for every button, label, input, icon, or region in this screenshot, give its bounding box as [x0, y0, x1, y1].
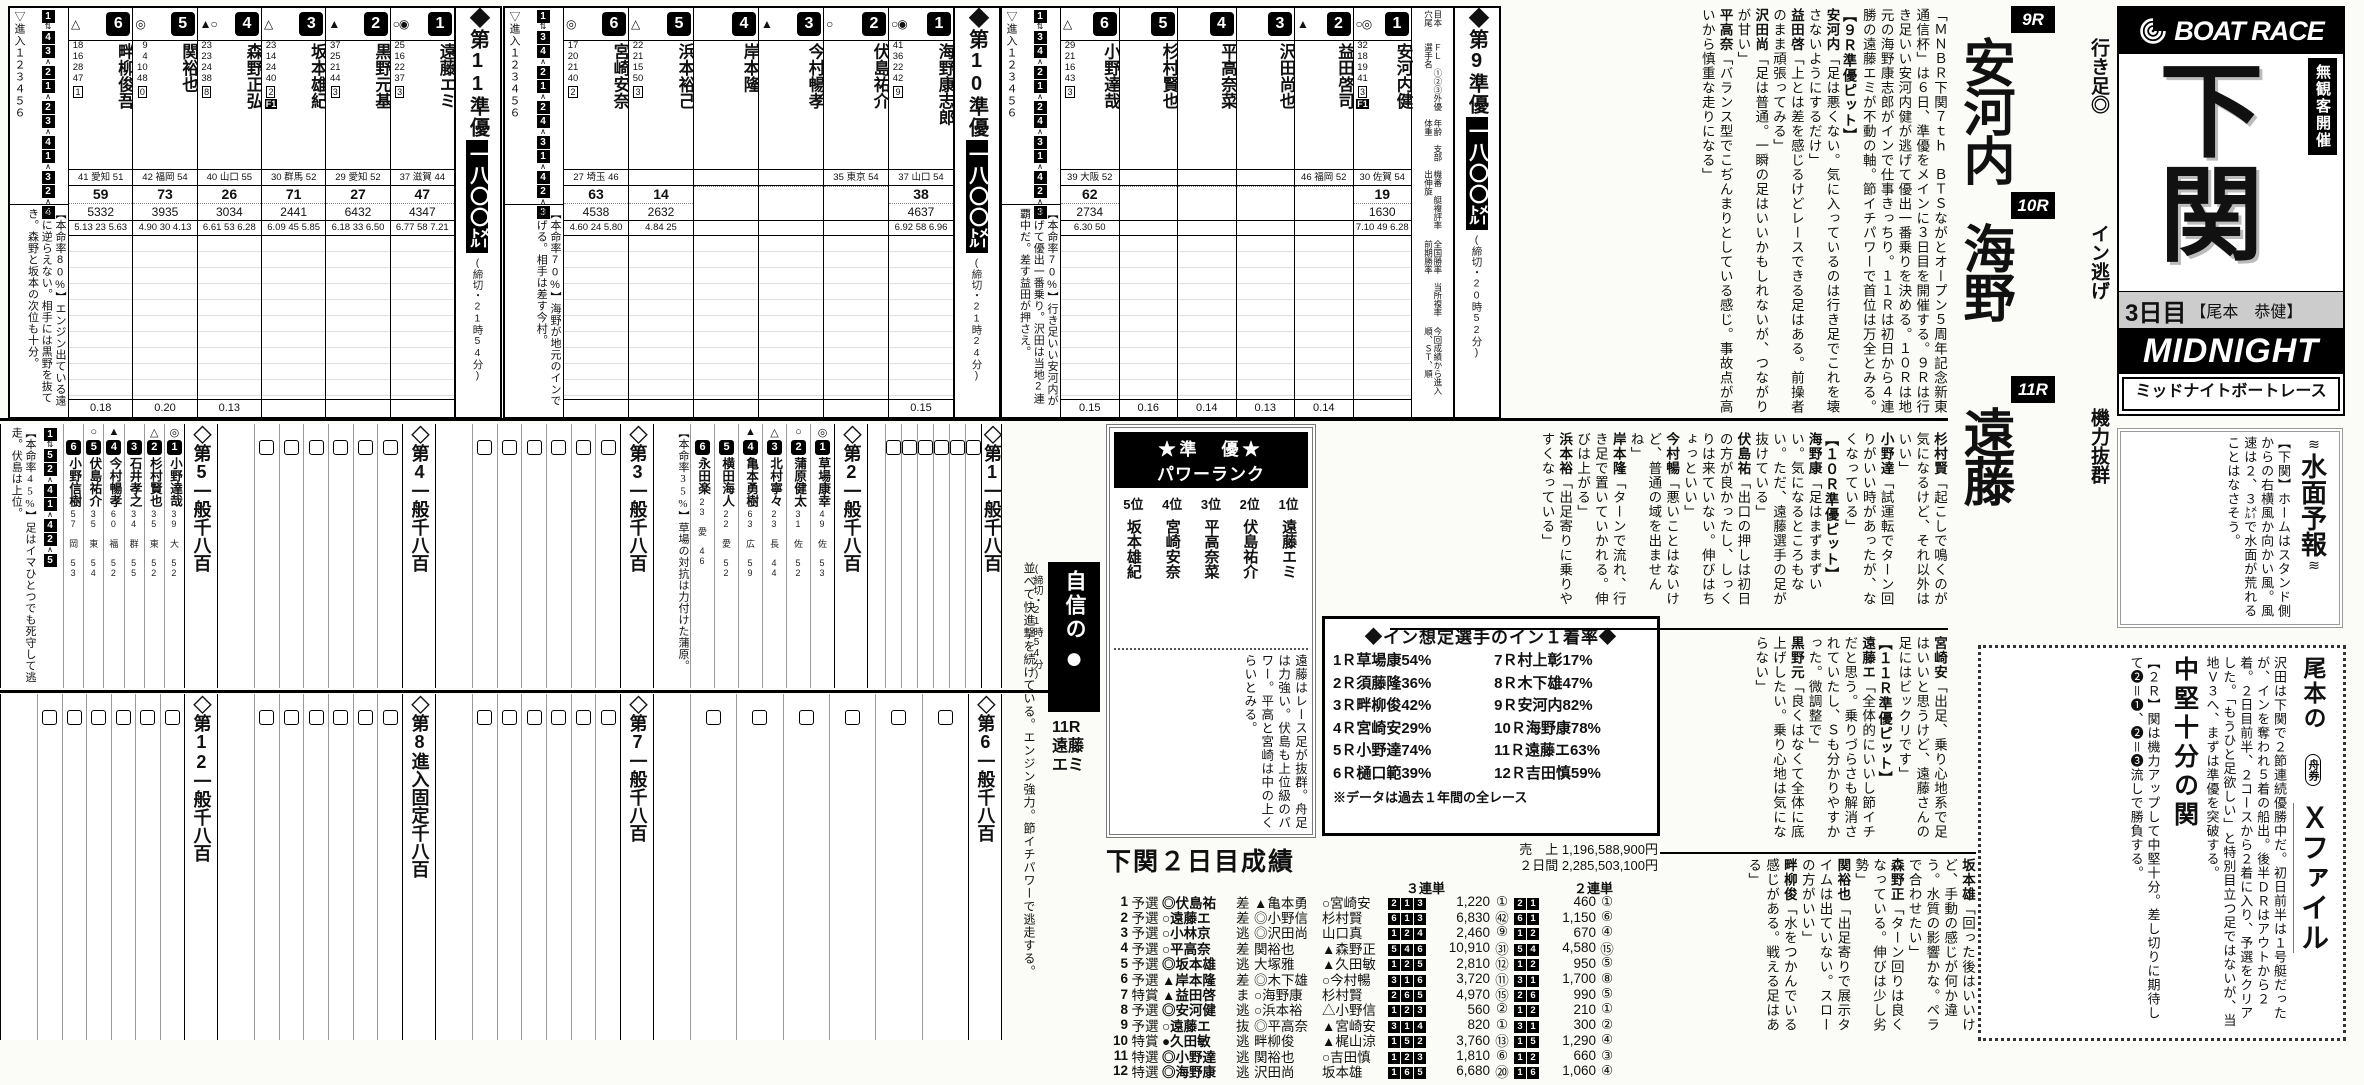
registration-number: 6432 — [326, 204, 389, 220]
headline-group: 11R遠藤機力抜群 — [1952, 376, 2114, 560]
racer-column: ○◎132 18 19 413F1安河内健30 佐賀 541916307.10 … — [1353, 8, 1412, 417]
combination-boat-number: 5 — [1414, 959, 1426, 971]
entry-pair: 1∧2 — [537, 80, 550, 114]
entry-boat-number: 4 — [42, 31, 55, 44]
foul-flag: F1 — [1356, 99, 1369, 109]
win-rates — [1120, 221, 1178, 236]
combination-boat-number: 1 — [1388, 959, 1400, 971]
preview-racer-column: ○2蒲原健太31 佐 52 — [786, 424, 810, 688]
racer-column: 5杉村賢也0.16 — [1119, 8, 1178, 417]
finish-combination: 31 — [1514, 971, 1550, 987]
finish-combination: 31 — [1514, 1017, 1550, 1033]
pit-quote: 小野達「試運転でターン回りがいい時があったが、なくなっている」 — [1841, 432, 1894, 608]
preview-racer-column: △3北村寧々23 長 44 — [762, 424, 786, 688]
preview-racer-column — [328, 424, 353, 688]
closed-door-label: 無観客開催 — [2308, 58, 2337, 155]
preview-title: ◇第8進入固定千八百 — [410, 694, 429, 878]
card-legend-column: 目本 穴尾ＦＬ ①②③外優 選手名年齢 支部 体重機番 艇複評率 出伸旋全国勝率… — [1411, 8, 1453, 417]
preview-comment — [654, 694, 690, 1040]
combination-boat-number: 1 — [1388, 1067, 1400, 1079]
in-course-win-rate-box: ◆イン想定選手のイン１着率◆ 1Ｒ草場康54%2Ｒ須藤隆36%3Ｒ畔柳俊42%4… — [1322, 616, 1660, 836]
combination-boat-number: 1 — [1401, 975, 1413, 987]
preview-boat-number: 3 — [127, 440, 142, 455]
entry-boat-number: 4 — [44, 484, 57, 497]
registration-number: 2441 — [262, 204, 325, 220]
masthead: BOAT RACE 無観客開催 下関 3日目 【尾本 恭健】 MIDNIGHT … — [2117, 6, 2345, 416]
fl-count: 3 — [1358, 86, 1367, 98]
preview-racer-name: 石井孝之 — [128, 457, 141, 507]
series-results-grid — [1178, 236, 1236, 400]
entry-pairs: 1⇅34∧21∧24∧31∧42∧3 — [523, 8, 563, 204]
preview-racer-column: △2杉村賢也35 東 52 — [144, 424, 164, 688]
preview-racer-column: 6小野信樹57 岡 53 — [63, 424, 83, 688]
race-number: 3 — [1106, 925, 1128, 940]
forecast-title: 水面予報 — [2295, 453, 2332, 557]
headline-catchphrase: 機力抜群 — [2085, 408, 2112, 484]
power-rank-entry: 3位平高奈菜 — [1200, 494, 1221, 644]
racer-column: 3沢田尚也0.13 — [1236, 8, 1295, 417]
preview-racer-column — [303, 424, 328, 688]
day-bar: 3日目 【尾本 恭健】 — [2119, 291, 2343, 328]
recent-results: 9 4 10 48 — [137, 41, 148, 85]
combination-boat-number: 2 — [1388, 898, 1400, 910]
foul-flag: F1 — [265, 99, 278, 109]
motor-number — [759, 186, 823, 187]
age-branch-weight: 35 東京 54 — [824, 170, 888, 186]
racer-column: ◎617 20 21 402宮崎安奈27 埼玉 466345384.60 24 … — [563, 8, 628, 417]
entry-boat-number: 4 — [44, 519, 57, 532]
combination-boat-number: 2 — [1401, 1005, 1413, 1017]
preview-racer-column — [922, 694, 968, 1040]
recent-results: 25 16 22 37 — [394, 41, 405, 85]
recent-results: 29 21 16 43 — [1065, 41, 1076, 85]
finish-combination: 15 — [1514, 1032, 1550, 1048]
in-rate-row: 7Ｒ村上彰17% — [1494, 650, 1649, 673]
preview-boat-number — [752, 710, 767, 725]
in-rate-row: 1Ｒ草場康54% — [1333, 650, 1488, 673]
caret-icon: ∧ — [1037, 93, 1043, 101]
preview-boat-number — [309, 440, 324, 455]
race-title: ◆第11準優 — [466, 8, 488, 138]
preview-boat-number — [934, 440, 949, 455]
preview-title: ◇第2一般千八百 — [842, 424, 861, 572]
power-rank-note: 遠藤はレース足が抜群。舟足は力強い。伏島も上位級のパワー。平高と宮崎は中の上くら… — [1114, 648, 1308, 830]
racer-column: △522 21 15 503浜本裕己1426324.84 25 — [628, 8, 693, 417]
racer-name: 益田啓司 — [1313, 41, 1353, 169]
pit-quote: 森野正「ターン回りは良くなっている。伸びは少し劣勢」 — [1851, 858, 1904, 1038]
preview-mark: △ — [770, 426, 778, 440]
age-branch-weight: 40 山口 55 — [198, 170, 261, 186]
preview-header-column: ◇第3一般千八百 — [620, 424, 653, 688]
prediction-marks: ○◉ — [891, 17, 907, 31]
entry-pair: 1∧2 — [1034, 80, 1047, 114]
entry-pair: 3∧2 — [42, 45, 55, 79]
forecast-body: 【下関】ホームはスタンド側からの右横風か向かい風。風速は２、３㍍で水面が荒れるこ… — [2125, 436, 2291, 620]
combination-boat-number: 6 — [1527, 990, 1539, 1002]
boat-number-badge: 2 — [1327, 12, 1351, 36]
boat-number-badge: 2 — [862, 12, 886, 36]
racer-name: 平高奈菜 — [1196, 41, 1236, 169]
finish-combination: 265 — [1388, 986, 1438, 1002]
motor-number — [1120, 186, 1178, 187]
sales-line: 売 上 1,196,588,900円 — [1519, 842, 1658, 858]
preview-racer-name: 伏島祐介 — [87, 457, 100, 507]
entry-pair: 4∧2 — [537, 45, 550, 79]
preview-racer-column: ▲4今村暢孝60 福 52 — [103, 424, 123, 688]
swap-arrows-icon: ⇅ — [1037, 23, 1044, 31]
caret-icon: ∧ — [45, 58, 51, 66]
prediction-marks: ▲ — [328, 17, 339, 31]
pit-quote: 畔柳俊「水をつかんでいる感じがある。戦える足はある」 — [1744, 858, 1797, 1038]
finish-combination: 152 — [1388, 1032, 1438, 1048]
preview-title: ◇第7一般千八百 — [628, 694, 647, 842]
combination-boat-number: 6 — [1514, 913, 1526, 925]
preview-comment: 【本命率45%】足はイマひとつでも死守して逃走。伏島は上位。 — [1, 424, 37, 688]
entry-pair: 3∧4 — [42, 115, 55, 149]
race-title: ◆第9準優 — [1466, 8, 1488, 115]
venue-block: 無観客開催 下関 — [2119, 54, 2343, 291]
racer-name: 小野達哉 — [1079, 41, 1119, 169]
swap-arrows-icon: ⇅ — [47, 441, 54, 449]
preview-racer-info: 49 佐 53 — [816, 509, 829, 578]
pit-quote: 海野康「足はまずまずいい。気になるところもない。ただ、遠藤選手の足が抜けている」 — [1751, 432, 1822, 608]
preview-boat-number: 2 — [791, 440, 806, 455]
in-rate-row: 6Ｒ樋口範39% — [1333, 763, 1488, 786]
entry-boat-number: 2 — [42, 66, 55, 79]
series-results-grid — [564, 236, 628, 400]
race-title: ◆第10準優 — [966, 8, 988, 138]
preview-racer-column: 6永田楽23 愛 46 — [690, 424, 714, 688]
preview-box: ◇第7一般千八百 — [436, 694, 654, 1040]
fl-count: 1 — [73, 86, 82, 98]
preview-boat-number — [502, 440, 517, 455]
confidence-banner-text: 自信の — [1059, 570, 1089, 642]
racer-column: 4岸本隆 — [693, 8, 758, 417]
divider — [1660, 852, 1976, 854]
preview-racer-column: ◎1小野達哉39 大 52 — [164, 424, 184, 688]
series-results-grid — [133, 236, 196, 400]
preview-entry-pairs: 1⇅52∧41∧42∧5 — [37, 424, 63, 688]
power-rank-entry: 5位坂本雄紀 — [1123, 494, 1144, 644]
trifecta-popularity: ⑳ — [1490, 1061, 1514, 1081]
finish-combination: 316 — [1388, 971, 1438, 987]
in-rate-note: ※データは過去１年間の全レース — [1333, 787, 1649, 806]
exacta-popularity: ⑤ — [1596, 955, 1618, 971]
pit-quote: 安河内「足は悪くない。気に入っているのは行き足でこれを壊さないようにするだけ」 — [1805, 8, 1841, 416]
start-timing — [759, 400, 823, 417]
motor-number: 62 — [1061, 186, 1119, 204]
xfile-subhead: 中堅十分の関 — [2171, 656, 2199, 830]
combination-boat-number: 2 — [1527, 1052, 1539, 1064]
power-rank-entry: 2位伏島祐介 — [1239, 494, 1260, 644]
motor-number: 27 — [326, 186, 389, 204]
series-results-grid — [1354, 236, 1412, 400]
entry-pair: 1⇅3 — [1034, 10, 1047, 44]
race-distance: 一八〇〇㍍ — [466, 140, 488, 253]
combination-boat-number: 1 — [1401, 898, 1413, 910]
entry-pairs: 1⇅34∧21∧24∧31∧42∧3 — [1020, 8, 1060, 204]
preview-boat-number — [576, 710, 591, 725]
caret-icon: ∧ — [1037, 128, 1043, 136]
exacta-popularity: ⑧ — [1596, 971, 1618, 987]
entry-boat-number: 3 — [42, 171, 55, 184]
speaker-name: 海野康 — [1807, 432, 1822, 476]
registration-number: 5332 — [69, 204, 132, 220]
combination-boat-number: 5 — [1527, 1036, 1539, 1048]
third-place: 坂本雄 — [1322, 1061, 1388, 1081]
racer-name: 沢田尚也 — [1255, 41, 1295, 169]
combination-boat-number: 2 — [1527, 959, 1539, 971]
preview-boat-number — [383, 440, 398, 455]
motor-number: 26 — [198, 186, 261, 204]
preview-racer-column — [917, 424, 933, 688]
preview-mark: ◎ — [818, 426, 828, 440]
first-place: ◎海野康 — [1162, 1061, 1236, 1081]
finish-combination: 124 — [1388, 924, 1438, 940]
preview-boat-number: 5 — [86, 440, 101, 455]
preview-title: ◇第4一般千八百 — [410, 424, 429, 572]
combination-boat-number: 1 — [1514, 1036, 1526, 1048]
race-deadline: (締切・21時54分) — [470, 257, 485, 382]
preview-boat-number — [601, 440, 616, 455]
legend-text: 年齢 支部 体重 — [1423, 119, 1442, 167]
finish-combination: 12 — [1514, 924, 1550, 940]
entry-pair: 4∧3 — [537, 115, 550, 149]
racer-column: ◎59 4 10 480関裕也42 福岡 547339354.90 30 4.1… — [132, 8, 196, 417]
day2-results-table: 下関２日目成績 売 上 1,196,588,900円２日間 2,285,503,… — [1106, 842, 1658, 1080]
confidence-race: 11R — [1052, 719, 1080, 736]
preview-racer-name: 草場康幸 — [816, 457, 829, 507]
power-rank-position: 5位 — [1123, 494, 1143, 513]
preview-boat-number — [165, 710, 180, 725]
preview-racer-name: 横田海人 — [720, 457, 733, 507]
age-branch-weight: 29 愛知 52 — [326, 170, 389, 186]
trifecta-payout: 2,460 — [1438, 925, 1490, 940]
motor-number: 47 — [391, 186, 454, 204]
age-branch-weight: 30 群馬 52 — [262, 170, 325, 186]
combination-boat-number: 2 — [1527, 1005, 1539, 1017]
pit-section-header: 【１１Ｒ準優ピット】 — [1876, 636, 1894, 848]
entry-pair: 1∧2 — [42, 80, 55, 114]
preview-box: ◇第8進入固定千八百 — [218, 694, 436, 1040]
headline-race-badge: 9R — [2011, 6, 2055, 33]
semifinal-power-rank-box: ★準 優★ パワーランク 1位遠藤エミ2位伏島祐介3位平高奈菜4位宮崎安奈5位坂… — [1106, 424, 1316, 838]
race-card: ▽進入１２３４５６1⇅34∧21∧24∧31∧42∧3【本命率70%】行き足いい… — [1000, 6, 1501, 419]
entry-boat-number: 2 — [537, 101, 550, 114]
combination-boat-number: 2 — [1401, 959, 1413, 971]
preview-racer-column — [875, 694, 921, 1040]
entry-boat-number: 2 — [42, 101, 55, 114]
confidence-racer-name: 遠藤エミ — [1052, 738, 1084, 774]
preview-header-column: ◇第4一般千八百 — [402, 424, 435, 688]
racer-name: 海野康志郎 — [907, 41, 953, 169]
preview-racer-info: 60 福 52 — [107, 509, 120, 578]
preview-header-column: ◇第7一般千八百 — [620, 694, 653, 1040]
headline-race-badge: 11R — [2011, 376, 2055, 403]
preview-boat-number — [966, 440, 981, 455]
caret-icon: ∧ — [1037, 58, 1043, 66]
win-rates: 6.61 53 6.28 — [198, 221, 261, 236]
speaker-name: 畔柳俊 — [1782, 858, 1797, 902]
prediction-marks: ◎ — [566, 17, 575, 31]
preview-racer-info: 23 愛 46 — [696, 497, 709, 566]
combination-boat-number: 6 — [1388, 913, 1400, 925]
speaker-name: 安河内 — [1824, 8, 1839, 52]
combination-boat-number: 1 — [1514, 959, 1526, 971]
entry-boat-number: 2 — [537, 66, 550, 79]
age-branch-weight: 46 福岡 52 — [1295, 170, 1353, 186]
preview-racer-column — [885, 424, 901, 688]
preview-racer-column — [377, 694, 402, 1040]
entry-boat-number: 5 — [44, 449, 57, 462]
preview-boat-number: 4 — [743, 440, 758, 455]
preview-racer-column: 3石井孝之34 群 55 — [124, 424, 144, 688]
second-place: 沢田尚 — [1254, 1061, 1322, 1081]
preview-racer-column — [736, 694, 782, 1040]
recent-results: 41 36 22 42 — [893, 41, 904, 85]
preview-racer-column — [111, 694, 136, 1040]
speaker-name: 岸本隆 — [1611, 432, 1626, 476]
in-rate-row: 4Ｒ宮崎安29% — [1333, 718, 1488, 741]
racer-name: 浜本裕己 — [647, 41, 693, 169]
age-branch-weight — [1120, 170, 1178, 186]
entry-pair: 1∧3 — [42, 150, 55, 184]
boatrace-swirl-icon — [2138, 16, 2168, 46]
headline-catchphrase: 行き足◎ — [2085, 38, 2112, 114]
combination-boat-number: 6 — [1527, 1067, 1539, 1079]
trifecta-payout: 1,220 — [1438, 894, 1490, 909]
byline: 【尾本 恭健】 — [2190, 298, 2302, 322]
age-branch-weight: 30 佐賀 54 — [1354, 170, 1412, 186]
preview-title: ◇第1一般千八百 — [982, 424, 1001, 572]
preview-boat-number — [918, 440, 933, 455]
preview-racer-column — [279, 424, 304, 688]
combination-boat-number: 3 — [1414, 1005, 1426, 1017]
preview-boat-number — [284, 710, 299, 725]
entry-pair: 4∧2 — [1034, 45, 1047, 79]
combination-boat-number: 5 — [1414, 990, 1426, 1002]
motor-number: 38 — [889, 186, 953, 204]
preview-boat-number — [576, 440, 591, 455]
preview-boat-number — [309, 710, 324, 725]
fl-count: 2 — [266, 86, 275, 98]
preview-racer-name: 亀本勇樹 — [744, 457, 757, 507]
combination-boat-number: 5 — [1401, 1036, 1413, 1048]
start-timing — [1354, 400, 1412, 417]
series-results-grid — [1120, 236, 1178, 400]
recent-results: 22 21 15 50 — [633, 41, 644, 85]
entry-pair: 1⇅4 — [42, 10, 55, 44]
racer-name: 畔柳俊吾 — [87, 41, 132, 169]
exacta-payout: 300 — [1550, 1017, 1596, 1032]
preview-racer-column — [521, 424, 546, 688]
preview-racer-column — [546, 424, 571, 688]
fl-count: 2 — [568, 86, 577, 98]
preview-racer-column — [86, 694, 111, 1040]
race-number: 10 — [1106, 1033, 1128, 1048]
finish-combination: 123 — [1388, 1001, 1438, 1017]
speaker-name: 小野達 — [1879, 432, 1894, 476]
combination-boat-number: 4 — [1414, 1021, 1426, 1033]
preview-boat-number — [845, 710, 860, 725]
preview-racer-column — [595, 694, 620, 1040]
preview-boat-number: 3 — [767, 440, 782, 455]
preview-box: 【本命率35%】草場の対抗は力付けた蒲原。6永田楽23 愛 465横田海人22 … — [654, 424, 868, 688]
confidence-mark: ● — [1065, 644, 1083, 674]
preview-comment — [436, 424, 472, 688]
age-branch-weight — [694, 170, 758, 186]
finish-combination: 125 — [1388, 955, 1438, 971]
win-rates: 6.92 58 6.96 — [889, 221, 953, 236]
win-rates — [1237, 221, 1295, 236]
combination-boat-number: 1 — [1388, 1036, 1400, 1048]
in-rate-row: 8Ｒ木下雄47% — [1494, 673, 1649, 696]
racer-name: 伏島祐介 — [842, 41, 888, 169]
preview-racer-name: 小野信樹 — [67, 457, 80, 507]
power-rank-list: 1位遠藤エミ2位伏島祐介3位平高奈菜4位宮崎安奈5位坂本雄紀 — [1114, 494, 1308, 644]
combination-boat-number: 1 — [1401, 913, 1413, 925]
xfile-title: Ｘファイル — [2293, 803, 2329, 953]
combination-boat-number: 6 — [1414, 975, 1426, 987]
registration-number: 2632 — [629, 204, 693, 220]
preview-boat-number — [477, 710, 492, 725]
preview-boat-number — [116, 710, 131, 725]
race-number: 12 — [1106, 1063, 1128, 1078]
combination-boat-number: 3 — [1514, 1021, 1526, 1033]
entry-boat-number: 2 — [1034, 66, 1047, 79]
preview-racer-column — [472, 694, 497, 1040]
fl-count: 3 — [1065, 86, 1074, 98]
finish-combination: 26 — [1514, 986, 1550, 1002]
age-branch-weight — [629, 170, 693, 186]
preview-racer-column — [783, 694, 829, 1040]
combination-boat-number: 4 — [1401, 944, 1413, 956]
finish-combination: 12 — [1514, 955, 1550, 971]
preview-racer-column — [328, 694, 353, 1040]
legend-text: 機番 艇複評率 出伸旋 — [1423, 170, 1442, 237]
xfile-badge: 舟券 — [2305, 754, 2321, 786]
start-timing: 0.15 — [889, 400, 953, 417]
preview-boat-number — [527, 440, 542, 455]
prediction-marks: △ — [264, 17, 272, 31]
preview-boat-number — [333, 440, 348, 455]
motor-number — [1295, 186, 1353, 187]
race-number: 11 — [1106, 1048, 1128, 1063]
race-card: ▽進入１２３４５６1⇅34∧21∧24∧31∧42∧3【本命率70%】海野が地元… — [503, 6, 1001, 419]
pit-report-band-2: 杉村賢「起こしで鳴くのが気になるけど、それ以外はいい」小野達「試運転でターン回り… — [1390, 432, 1948, 608]
preview-racer-column: ◎1草場康幸49 佐 53 — [810, 424, 834, 688]
sales-line: ２日間 2,285,503,100円 — [1519, 858, 1658, 874]
power-rank-position: 3位 — [1201, 494, 1221, 513]
fl-count: 8 — [202, 86, 211, 98]
entry-boat-number: 3 — [537, 31, 550, 44]
exacta-payout: 1,150 — [1550, 910, 1596, 925]
preview-racer-column — [472, 424, 497, 688]
in-rate-row: 3Ｒ畔柳俊42% — [1333, 695, 1488, 718]
preview-racer-column — [37, 694, 62, 1040]
midnight-label: MIDNIGHT — [2119, 328, 2343, 374]
preview-header-column: ◇第8進入固定千八百 — [402, 694, 435, 1040]
combination-boat-number: 1 — [1388, 1052, 1400, 1064]
entry-pair: 2∧4 — [44, 463, 57, 497]
win-rates — [1178, 221, 1236, 236]
motor-number: 71 — [262, 186, 325, 204]
exacta-payout: 670 — [1550, 925, 1596, 940]
finish-combination: 61 — [1514, 909, 1550, 925]
preview-racer-name: 永田楽 — [696, 457, 709, 495]
preview-racer-name: 今村暢孝 — [107, 457, 120, 507]
combination-boat-number: 2 — [1514, 898, 1526, 910]
